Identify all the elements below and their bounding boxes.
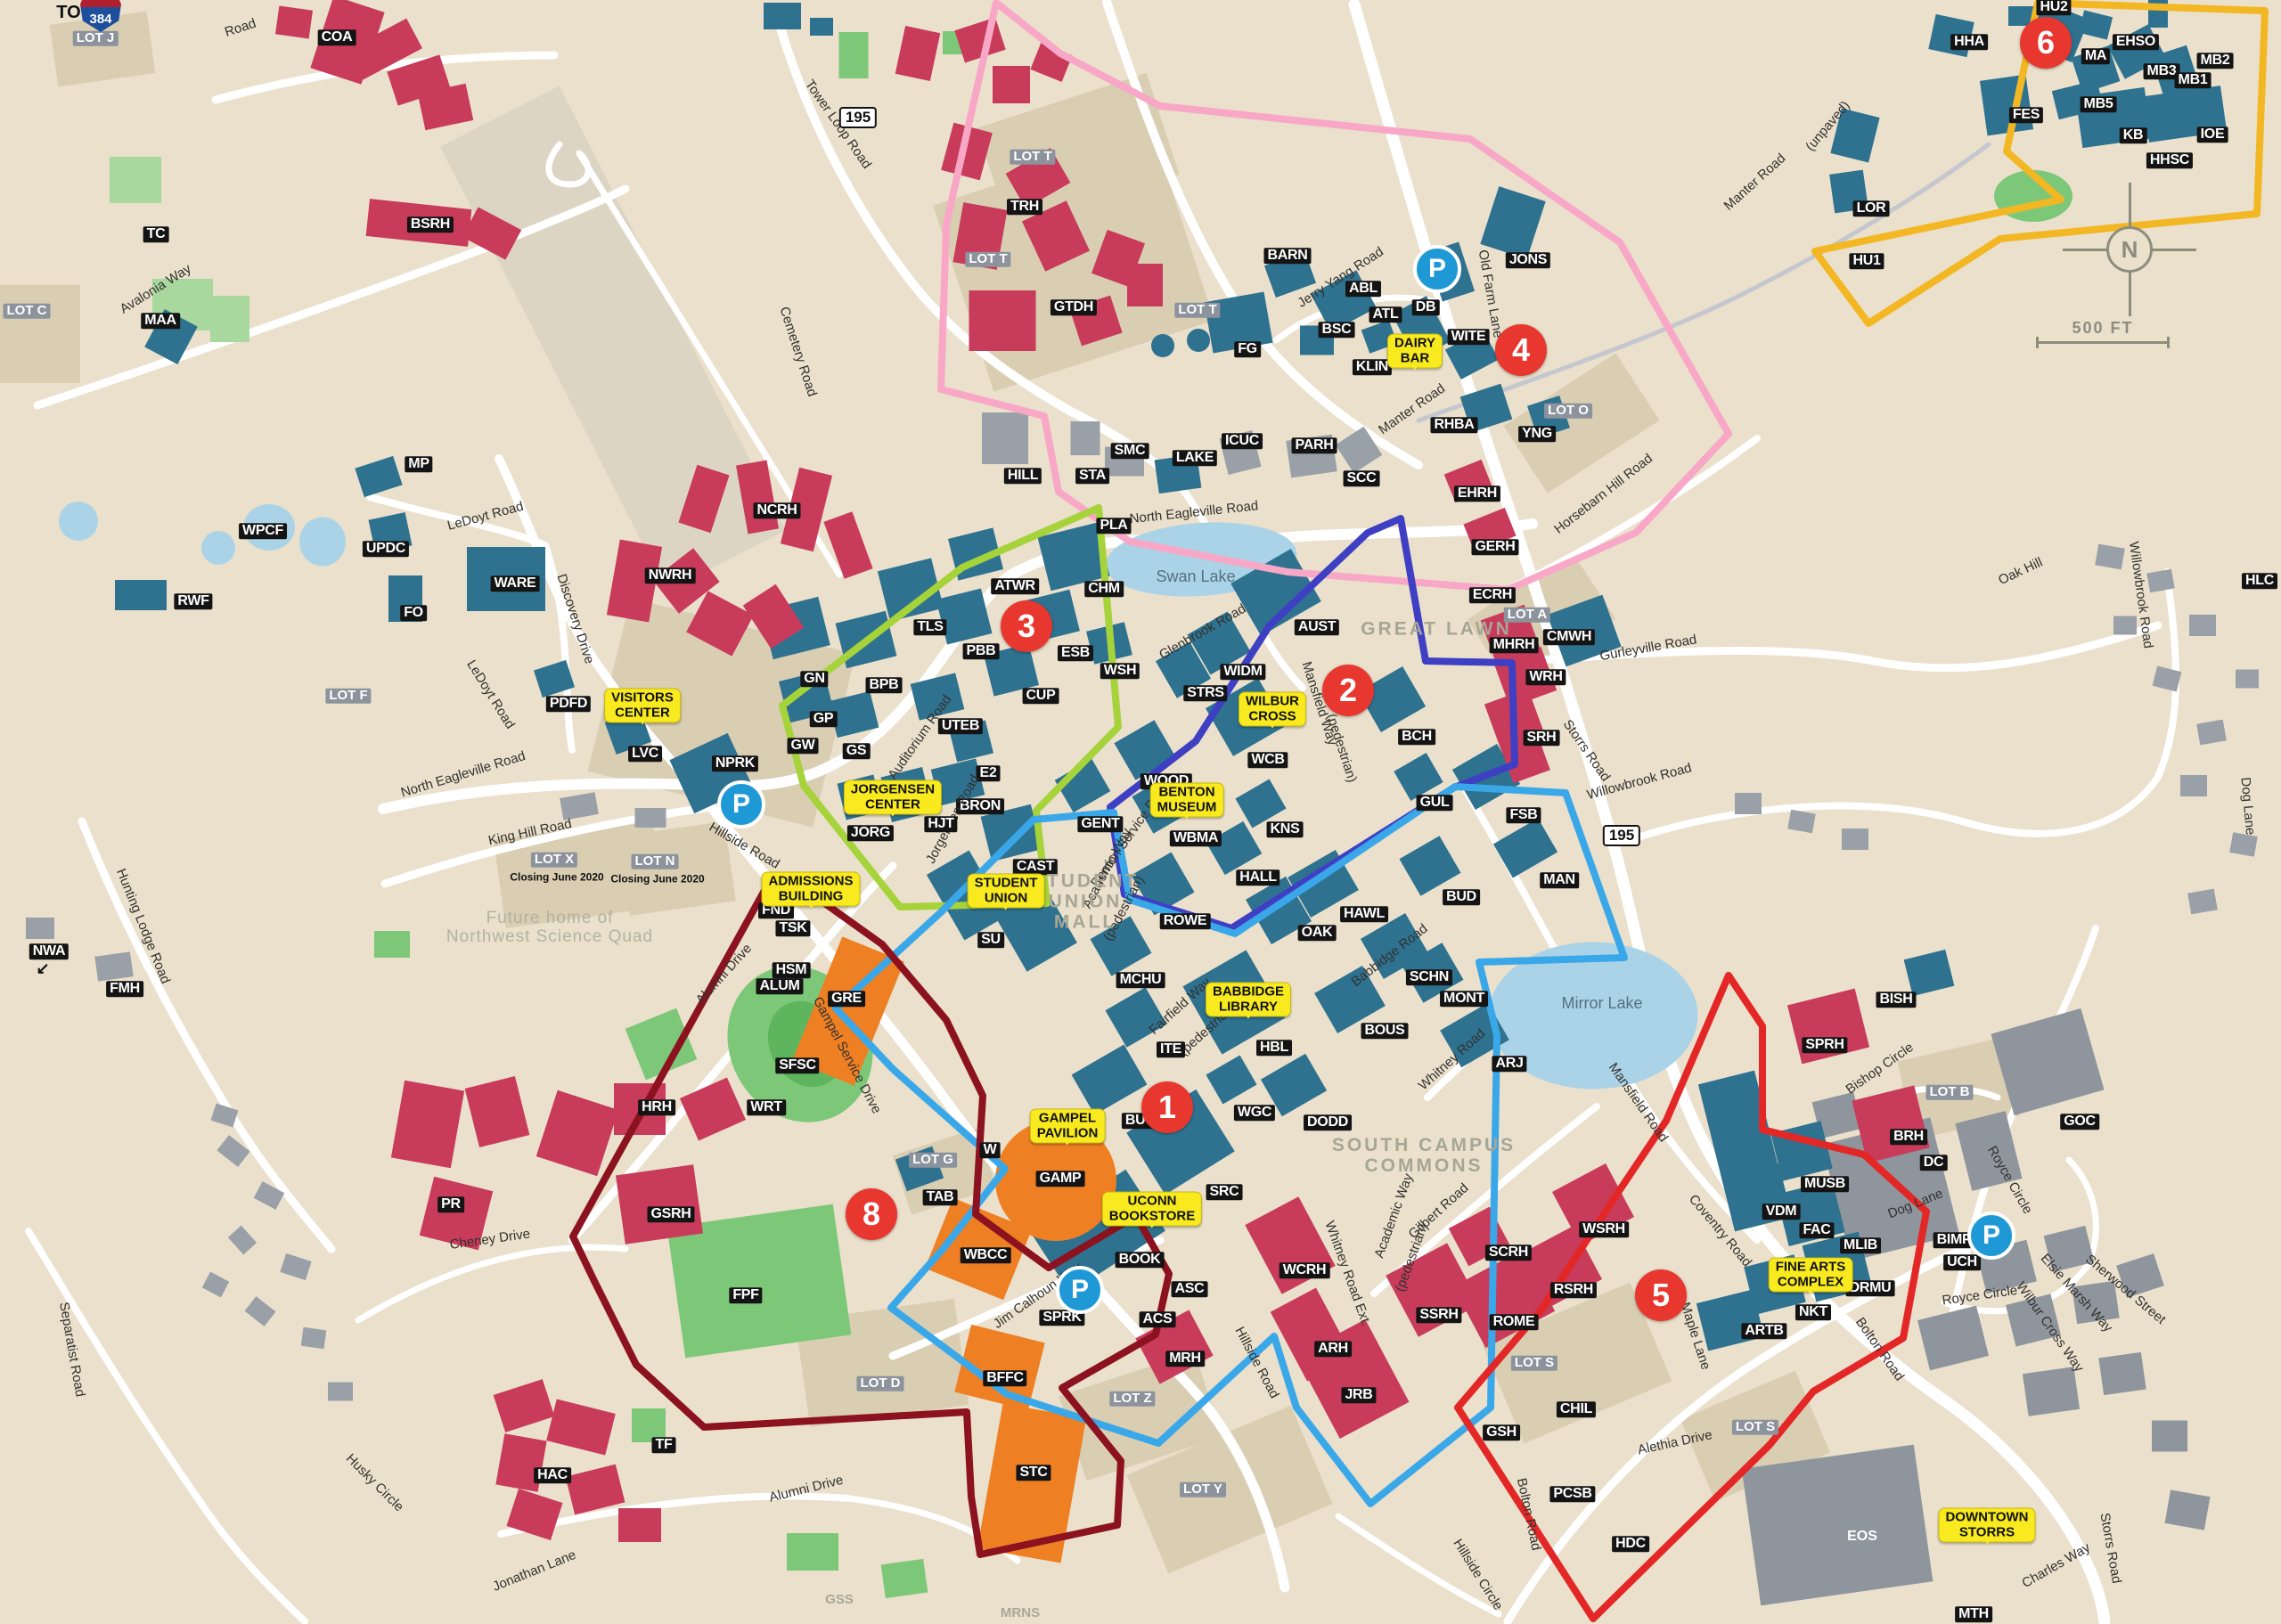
building-code-label: HLC [2242,573,2277,589]
lot-label: LOT T [965,252,1010,267]
road-label: Manter Road [1721,151,1788,214]
building-code-label: BPB [866,677,903,693]
building-code-label: W [980,1142,1001,1158]
building-code-label: MA [2081,48,2110,64]
building-code-label: MONT [1440,991,1488,1007]
building-code-label: WCRH [1279,1262,1330,1278]
lot-label: LOT Y [1180,1482,1226,1498]
building-code-label: EHRH [1454,486,1500,502]
building-code-label: FG [1234,341,1261,357]
lot-label: LOT T [1010,150,1055,165]
scale-line [2036,341,2170,344]
building-code-label: WCB [1247,752,1288,768]
building-code-label: WARE [491,575,540,592]
zone-number-badge: 2 [1322,665,1374,716]
building-code-label: PLA [1096,518,1131,534]
building-code-label: FPF [729,1287,762,1303]
building-code-label: PCSB [1549,1486,1595,1502]
building-code-label: NCRH [753,502,800,518]
building-code-label: MB5 [2081,96,2117,112]
building-code-label: ICUC [1222,433,1263,449]
building-code-label: DB [1412,299,1440,315]
building-code-label: WSRH [1579,1221,1629,1237]
building-code-label: BUD [1443,889,1480,905]
callout-label: VISITORS CENTER [604,689,681,723]
road-label: Hillside Road [1231,1325,1281,1401]
callout-label: WILBUR CROSS [1239,692,1306,727]
callout-label: BENTON MUSEUM [1150,783,1224,818]
note-label: Closing June 2020 [510,871,603,883]
building-code-label: MUSB [1801,1176,1849,1192]
zone-number-badge: 1 [1141,1081,1193,1133]
building-code-label: WPCF [239,523,287,539]
lot-label: LOT G [909,1153,957,1168]
building-code-label: HSM [773,962,811,978]
building-code-label: SRC [1206,1184,1243,1200]
road-label: North Eagleville Road [399,749,527,801]
building-code-label: JORG [847,825,894,841]
lot-label: LOT D [857,1376,904,1391]
road-label: Husky Circle [342,1451,405,1514]
callout-label: DAIRY BAR [1387,334,1443,369]
building-code-label: ATL [1369,306,1402,322]
road-label: Horsebarn Hill Road [1552,452,1656,537]
building-code-label: HRH [638,1099,675,1115]
building-code-label: AUST [1295,619,1339,635]
lot-label: LOT N [632,854,679,869]
building-code-label: BOUS [1361,1023,1408,1039]
road-label: Mansfield Road [1605,1061,1670,1146]
road-label: Storrs Road [1559,717,1612,784]
building-code-label: DRMU [1846,1280,1895,1296]
building-code-label: WITE [1448,329,1490,345]
building-code-label: GTDH [1051,299,1097,315]
building-code-label: ALUM [756,978,803,994]
building-code-label: UTEB [938,718,983,734]
building-code-label: RWF [174,593,212,609]
parking-icon: P [1967,1212,2015,1260]
building-code-label: TLS [913,619,946,635]
callout-label: FINE ARTS COMPLEX [1769,1258,1853,1293]
building-code-label: UCH [1943,1254,1981,1270]
building-code-label: HALL [1236,869,1279,885]
scale-bar: 500 FT [2036,319,2170,344]
callout-label: ADMISSIONS BUILDING [761,872,860,907]
building-code-label: HDC [1612,1536,1649,1552]
building-code-label: STA [1075,468,1109,484]
building-code-label: GERH [1471,539,1518,555]
building-code-label: CHIL [1557,1401,1596,1417]
building-code-label: PR [437,1196,464,1212]
building-code-label: WBMA [1170,830,1222,846]
building-code-label: WRH [1525,669,1566,685]
callout-label: JORGENSEN CENTER [844,780,942,815]
area-label: STUDENT UNION MALL [1032,870,1139,932]
building-code-label: NPRK [712,755,758,771]
parking-icon: P [1056,1266,1104,1314]
road-label: Separatist Road [56,1302,87,1399]
building-code-label: CMWH [1543,629,1595,645]
road-label: Jonathan Lane [491,1548,578,1595]
area-label: MRNS [1001,1606,1040,1621]
building-code-label: ROME [1490,1314,1539,1330]
area-label: GSS [825,1593,854,1608]
building-code-label: ESB [1058,645,1093,661]
callout-label: UCONN BOOKSTORE [1102,1192,1202,1227]
road-label: Oak Hill [1997,555,2046,588]
building-code-label: SCRH [1485,1245,1532,1261]
building-code-label: HU1 [1849,253,1884,269]
lot-label: LOT X [531,853,577,868]
building-code-label: RSRH [1550,1282,1597,1298]
building-code-label: GP [810,711,838,727]
building-code-label: KNS [1267,821,1304,837]
road-label: King Hill Road [487,817,573,849]
building-code-label: BSC [1319,322,1355,338]
zone-number-badge: 3 [1001,600,1052,652]
building-code-label: JRB [1341,1387,1376,1403]
building-code-label: SFSC [775,1057,819,1073]
lot-label: LOT S [1511,1356,1557,1371]
building-code-label: BISH [1876,992,1916,1008]
building-code-label: EOS [1847,1529,1877,1545]
road-label: Alumni Drive [768,1473,845,1506]
building-code-label: HAC [534,1467,571,1483]
road-label: Storrs Road [2097,1512,2123,1585]
lot-label: LOT J [73,31,119,46]
building-code-label: ASC [1172,1281,1208,1297]
road-label: Bolton Road [1513,1477,1542,1552]
building-code-label: ITE [1157,1041,1185,1057]
building-code-label: ATWR [991,578,1039,594]
lot-label: LOT T [1174,303,1220,318]
building-code-label: FES [2009,107,2043,123]
zone-number-badge: 5 [1635,1269,1687,1321]
road-label: Old Farm Lane [1475,249,1505,339]
road-label: (unpaved) [1803,99,1853,154]
building-code-label: CUP [1023,688,1059,704]
road-label: Charles Way [2020,1541,2093,1592]
building-code-label: HAWL [1340,906,1388,922]
building-code-label: TAB [923,1189,958,1205]
road-label: (pedestrian) [1323,712,1359,784]
building-code-label: WIDM [1220,664,1265,680]
water-label: Mirror Lake [1561,995,1642,1013]
building-code-label: TSK [775,920,810,936]
building-code-label: SRH [1524,730,1560,746]
building-code-label: SPRH [1802,1037,1847,1053]
building-code-label: VDM [1762,1204,1801,1220]
building-code-label: OAK [1298,925,1337,941]
building-code-label: KLIN [1353,359,1392,375]
building-code-label: LAKE [1173,450,1217,466]
building-code-label: HJT [924,816,957,832]
building-code-label: WBCC [961,1247,1011,1263]
compass-north-label: N [2106,226,2153,273]
building-code-label: FO [400,605,427,621]
building-code-label: GOC [2060,1114,2099,1130]
building-code-label: HILL [1004,468,1042,484]
building-code-label: MAA [141,313,180,329]
road-label: Road [223,17,258,41]
building-code-label: STRS [1183,685,1227,701]
lot-label: LOT S [1732,1420,1778,1435]
building-code-label: MHRH [1490,637,1539,653]
lot-label: LOT C [4,304,51,319]
building-code-label: MLIB [1840,1237,1881,1253]
building-code-label: MB2 [2197,53,2234,69]
building-code-label: ACS [1140,1311,1176,1327]
building-code-label: TRH [1007,199,1042,215]
text-label: TO [56,3,80,22]
callout-label: BABBIDGE LIBRARY [1206,983,1291,1017]
building-code-label: CHM [1084,581,1124,597]
building-code-label: ECRH [1469,587,1516,603]
building-code-label: STC [1016,1465,1051,1481]
lot-label: LOT F [325,689,371,704]
area-label: SOUTH CAMPUS COMMONS [1332,1135,1516,1176]
road-label: North Eagleville Road [1129,499,1259,527]
building-code-label: IOE [2197,126,2228,143]
building-code-label: NWRH [645,567,696,583]
building-code-label: WRT [747,1099,786,1115]
building-code-label: NWA [29,943,69,959]
road-label: Bishop Circle [1844,1041,1917,1098]
building-code-label: GUL [1417,795,1453,811]
callout-label: DOWNTOWN STORRS [1938,1508,2035,1543]
building-code-label: BARN [1263,248,1311,264]
building-code-label: DC [1920,1155,1948,1171]
arrow-icon: ↙ [36,960,49,978]
parking-icon: P [717,780,765,828]
road-label: Alethia Drive [1637,1428,1714,1458]
callout-label: STUDENT UNION [968,874,1045,909]
building-code-label: ROWE [1160,913,1211,929]
building-code-label: ABL [1345,281,1381,297]
lot-label: LOT B [1926,1085,1974,1100]
callout-label: GAMPEL PAVILION [1030,1109,1106,1144]
building-code-label: FSB [1506,807,1541,823]
building-code-label: MTH [1955,1606,1992,1622]
road-label: Maple Lane [1677,1301,1713,1372]
building-code-label: GENT [1077,816,1123,832]
area-label: Future home of Northwest Science Quad [446,910,653,947]
building-code-label: HHA [1950,34,1988,50]
building-code-label: GSH [1483,1424,1520,1440]
road-label: (pedestrian) [1394,1222,1432,1294]
building-code-label: GAMP [1036,1171,1085,1187]
road-label: Royce Circle [1942,1284,2019,1309]
building-code-label: MRH [1165,1351,1205,1367]
building-code-label: TF [652,1437,676,1453]
road-label: Hunting Lodge Road [113,867,173,986]
building-code-label: PDFD [546,696,591,712]
building-code-label: FAC [1799,1222,1834,1238]
building-code-label: BRH [1890,1129,1927,1145]
building-code-label: WGC [1234,1105,1275,1121]
building-code-label: SCC [1344,470,1380,486]
interstate-384-shield: 384 [80,0,121,32]
route-195-shield: 195 [839,107,877,128]
road-label: LeDoyt Road [463,657,517,731]
water-label: Swan Lake [1156,568,1235,586]
route-195-shield: 195 [1603,825,1640,846]
building-code-label: ARJ [1492,1056,1526,1072]
road-label: Auditorium Road [886,693,955,783]
parking-icon: P [1413,245,1461,293]
building-code-label: RHBA [1430,417,1477,433]
building-code-label: GRE [828,991,865,1007]
lot-label: LOT Z [1109,1391,1155,1407]
zone-number-badge: 4 [1495,324,1547,376]
road-label: Whitney Road [1416,1026,1488,1093]
building-code-label: GW [788,738,819,754]
compass-rose: N [2063,183,2196,316]
building-code-label: GN [800,671,828,687]
building-code-label: EHSO [2113,34,2159,50]
building-code-label: SCHN [1406,969,1452,985]
zone-number-badge: 6 [2020,17,2072,69]
road-label: Cheney Drive [449,1228,531,1253]
road-label: Discovery Drive [553,573,596,666]
road-label: Dog Lane [1886,1187,1946,1222]
building-code-label: HHSC [2146,152,2193,168]
building-code-label: MCHU [1116,972,1165,988]
building-code-label: MP [405,456,432,472]
building-code-label: LVC [628,746,662,762]
building-code-label: GS [843,743,871,759]
building-code-label: DODD [1304,1114,1352,1130]
building-code-label: GSRH [647,1206,694,1222]
building-code-label: SU [977,932,1004,948]
area-label: GREAT LAWN [1361,618,1512,639]
building-code-label: BOOK [1116,1252,1165,1268]
road-label: Dog Lane [2237,777,2257,836]
building-code-label: YNG [1518,426,1556,442]
building-code-label: PBB [963,643,1000,659]
building-code-label: JONS [1506,252,1550,268]
building-code-label: TC [143,226,169,242]
building-code-label: PARH [1292,437,1337,453]
road-label: LeDoyt Road [446,500,526,535]
building-code-label: SMC [1111,443,1149,459]
road-label: Royce Circle [1984,1144,2035,1217]
lot-label: LOT O [1544,404,1592,419]
building-code-label: FMH [106,981,143,997]
campus-map: TOLOT JCOARoadBSRHTCLOT CMAAAvalonia Way… [0,0,2281,1624]
road-label: Cemetery Road [776,305,819,398]
road-label: Gampel Service Drive [809,995,883,1117]
building-code-label: WSH [1100,663,1140,679]
map-labels-layer: TOLOT JCOARoadBSRHTCLOT CMAAAvalonia Way… [0,0,2281,1624]
road-label: Avalonia Way [118,262,194,317]
road-label: Bolton Road [1852,1315,1907,1383]
note-label: Closing June 2020 [610,873,704,885]
road-label: Coventry Road [1686,1192,1754,1269]
building-code-label: MAN [1540,872,1579,888]
building-code-label: COA [318,29,356,45]
building-code-label: NKT [1795,1304,1831,1320]
building-code-label: LOR [1853,200,1890,216]
road-label: Willowbrook Road [2125,541,2154,649]
building-code-label: HBL [1256,1040,1292,1056]
building-code-label: BCH [1398,729,1435,745]
zone-number-badge: 8 [846,1188,897,1240]
road-label: Gurleyville Road [1598,632,1697,664]
road-label: Glenbrook Road [1157,602,1249,664]
building-code-label: ARH [1314,1341,1352,1357]
building-code-label: ARTB [1741,1323,1786,1339]
building-code-label: SSRH [1416,1307,1461,1323]
building-code-label: BFFC [983,1370,1026,1386]
building-code-label: UPDC [363,541,409,557]
building-code-label: MB1 [2175,72,2212,88]
building-code-label: KB [2120,127,2147,143]
road-label: Alumni Drive [693,942,755,1008]
road-label: Hillside Circle [1450,1537,1505,1613]
building-code-label: HU2 [2036,0,2071,15]
scale-text: 500 FT [2036,319,2170,338]
building-code-label: BSRH [407,216,454,233]
